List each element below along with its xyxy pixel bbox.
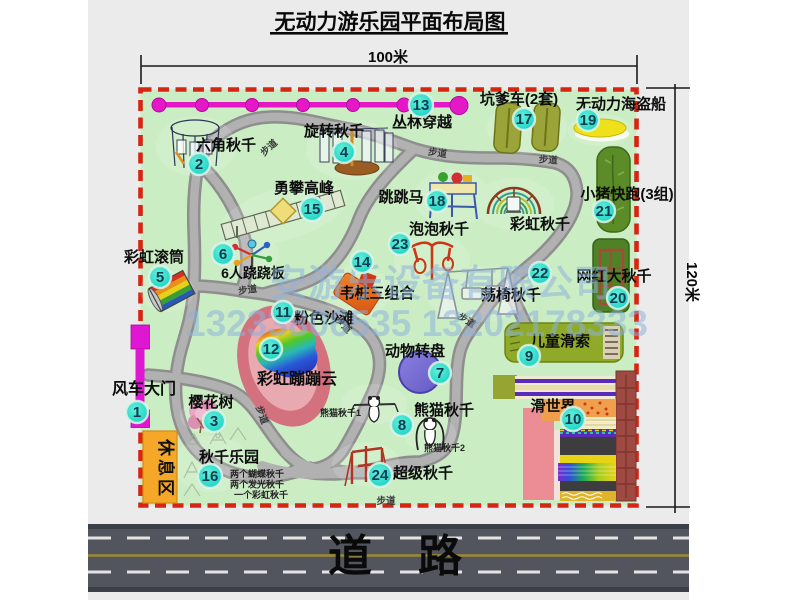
svg-text:樱花树: 樱花树: [188, 393, 233, 411]
svg-text:彩虹蹦蹦云: 彩虹蹦蹦云: [256, 369, 337, 388]
svg-text:彩虹滚筒: 彩虹滚筒: [123, 248, 184, 266]
svg-text:泡泡秋千: 泡泡秋千: [409, 220, 469, 238]
svg-text:风车大门: 风车大门: [112, 379, 176, 398]
svg-text:10: 10: [565, 411, 582, 428]
svg-text:六角秋千: 六角秋千: [196, 136, 256, 154]
svg-text:安游乐设备有限公司: 安游乐设备有限公司: [270, 263, 612, 304]
svg-text:20: 20: [610, 290, 627, 307]
svg-text:4: 4: [340, 144, 349, 161]
svg-text:21: 21: [596, 203, 613, 220]
svg-text:步道: 步道: [538, 153, 558, 166]
svg-text:6: 6: [219, 246, 227, 263]
svg-text:无动力游乐园平面布局图: 无动力游乐园平面布局图: [275, 10, 506, 34]
svg-text:18: 18: [429, 193, 446, 210]
svg-text:勇攀高峰: 勇攀高峰: [274, 179, 335, 197]
svg-text:12: 12: [263, 341, 280, 358]
svg-text:小猪快跑(3组): 小猪快跑(3组): [580, 185, 673, 203]
svg-text:17: 17: [516, 111, 533, 128]
svg-text:动物转盘: 动物转盘: [385, 342, 445, 360]
svg-text:15: 15: [304, 201, 321, 218]
svg-text:步道: 步道: [376, 495, 396, 507]
svg-text:彩虹秋千: 彩虹秋千: [509, 215, 570, 233]
svg-text:14: 14: [354, 254, 371, 271]
svg-text:熊猫秋千1: 熊猫秋千1: [320, 407, 361, 418]
svg-text:道: 道: [328, 532, 372, 581]
svg-text:2: 2: [195, 156, 203, 173]
svg-text:120米: 120米: [683, 262, 701, 303]
svg-text:熊猫秋千: 熊猫秋千: [414, 401, 474, 419]
svg-text:一个彩虹秋千: 一个彩虹秋千: [234, 489, 288, 500]
svg-text:两个蝴蝶秋千: 两个蝴蝶秋千: [230, 468, 284, 479]
svg-text:13233806535 13202178333: 13233806535 13202178333: [185, 303, 648, 344]
svg-text:22: 22: [532, 265, 549, 282]
svg-text:旋转秋千: 旋转秋千: [303, 122, 364, 140]
svg-text:19: 19: [580, 112, 597, 129]
svg-text:休息区: 休息区: [156, 438, 176, 499]
svg-text:路: 路: [418, 532, 463, 581]
svg-text:100米: 100米: [368, 48, 409, 66]
svg-text:23: 23: [392, 236, 409, 253]
svg-text:超级秋千: 超级秋千: [392, 464, 453, 482]
svg-text:跳跳马: 跳跳马: [378, 188, 423, 206]
svg-text:坑爹车(2套): 坑爹车(2套): [480, 90, 558, 108]
svg-text:16: 16: [202, 468, 219, 485]
svg-text:7: 7: [436, 365, 444, 382]
svg-text:熊猫秋千2: 熊猫秋千2: [424, 442, 465, 453]
svg-text:3: 3: [210, 413, 218, 430]
svg-text:5: 5: [156, 269, 164, 286]
svg-text:两个发光秋千: 两个发光秋千: [230, 479, 284, 490]
svg-text:1: 1: [133, 404, 141, 421]
svg-text:9: 9: [525, 348, 533, 365]
svg-text:11: 11: [275, 304, 291, 321]
svg-text:8: 8: [398, 417, 406, 434]
svg-text:13: 13: [413, 97, 430, 114]
svg-text:24: 24: [372, 467, 389, 484]
